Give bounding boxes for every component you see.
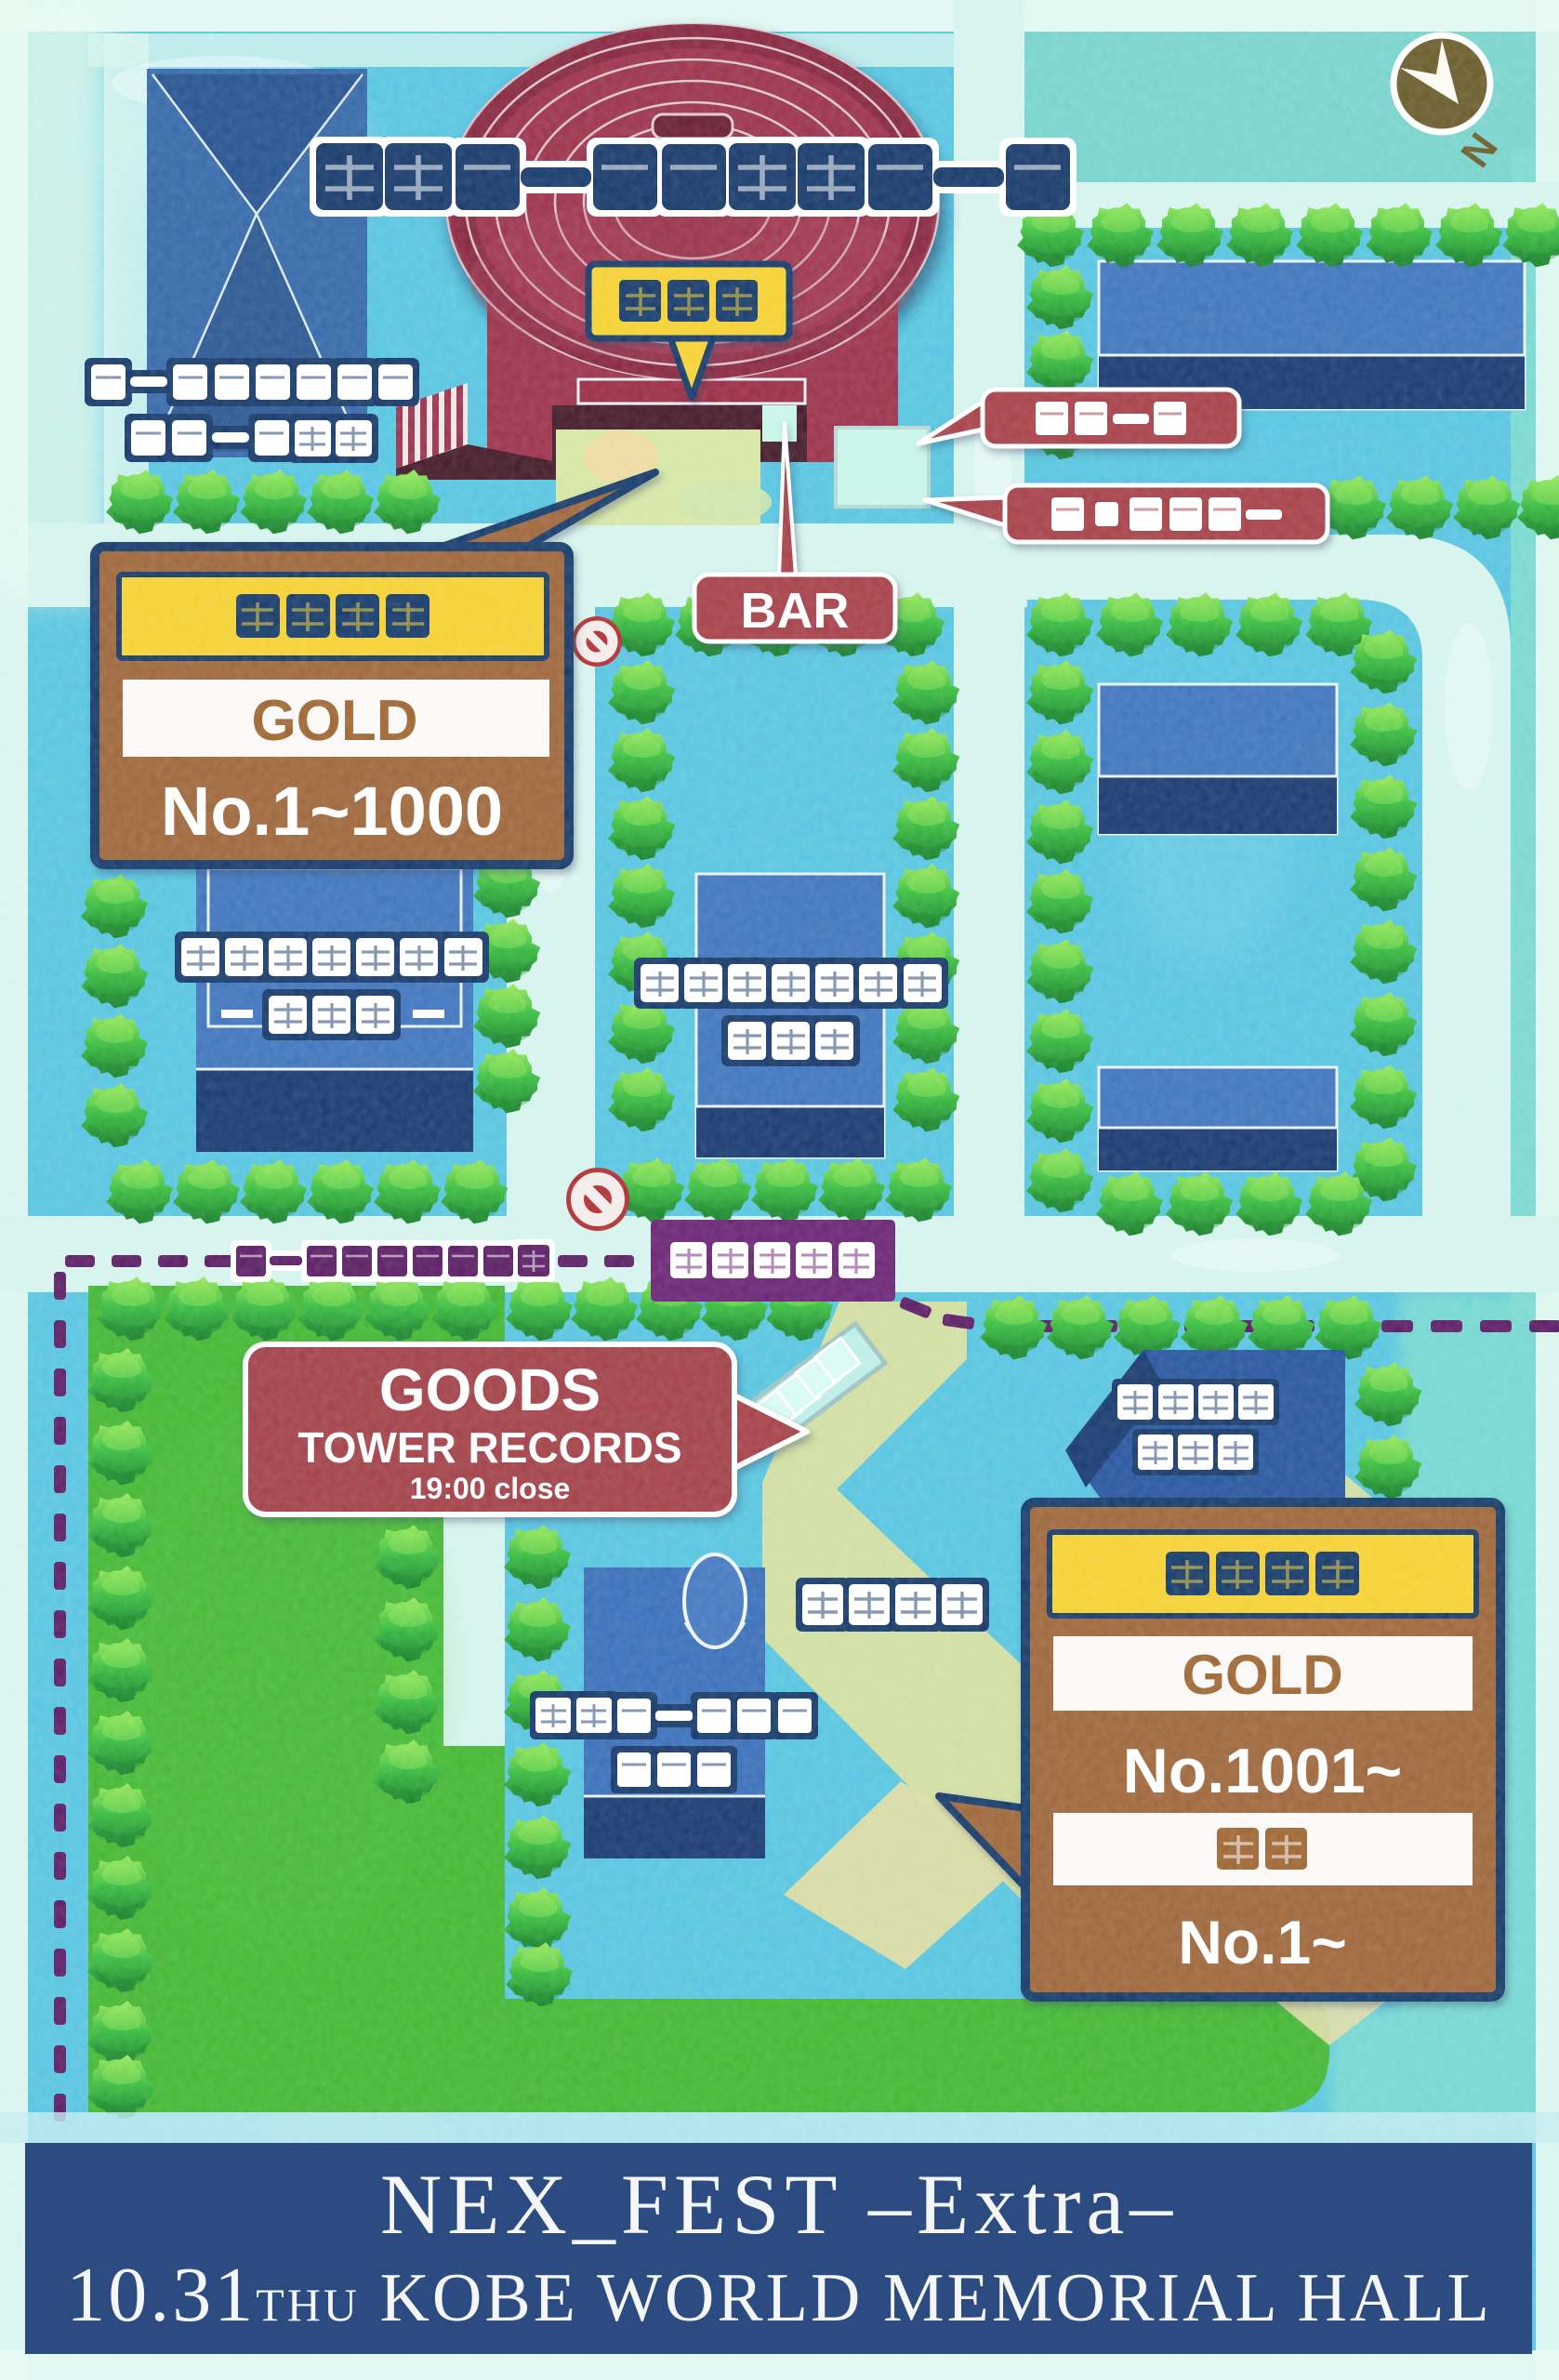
svg-text:NEX_FEST –Extra–: NEX_FEST –Extra– [380, 2157, 1178, 2252]
svg-text:GOLD: GOLD [251, 689, 417, 753]
svg-text:No.1~1000: No.1~1000 [161, 773, 503, 850]
svg-text:TOWER RECORDS: TOWER RECORDS [297, 1423, 681, 1472]
svg-text:19:00 close: 19:00 close [410, 1472, 571, 1505]
svg-text:GOLD: GOLD [1182, 1644, 1342, 1706]
svg-text:No.1~: No.1~ [1178, 1908, 1347, 1977]
svg-text:BAR: BAR [741, 583, 850, 639]
svg-text:GOODS: GOODS [379, 1356, 601, 1423]
svg-text:No.1001~: No.1001~ [1123, 1736, 1403, 1806]
